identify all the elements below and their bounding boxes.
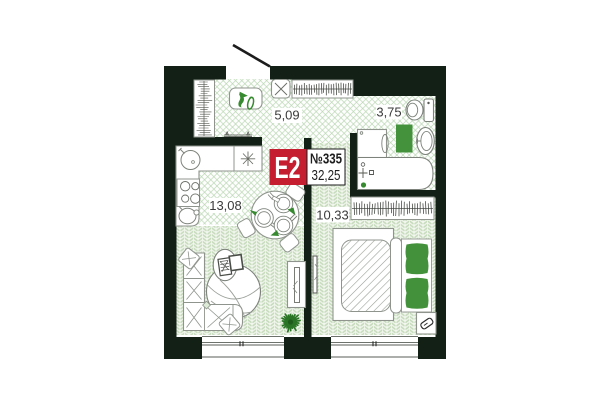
svg-text:E2: E2 [275, 151, 301, 185]
svg-text:10,33: 10,33 [316, 208, 349, 223]
svg-text:5,09: 5,09 [274, 108, 299, 123]
svg-text:32,25: 32,25 [312, 168, 341, 184]
svg-text:№335: №335 [310, 152, 342, 168]
svg-text:13,08: 13,08 [209, 198, 242, 213]
svg-text:3,75: 3,75 [376, 105, 401, 120]
